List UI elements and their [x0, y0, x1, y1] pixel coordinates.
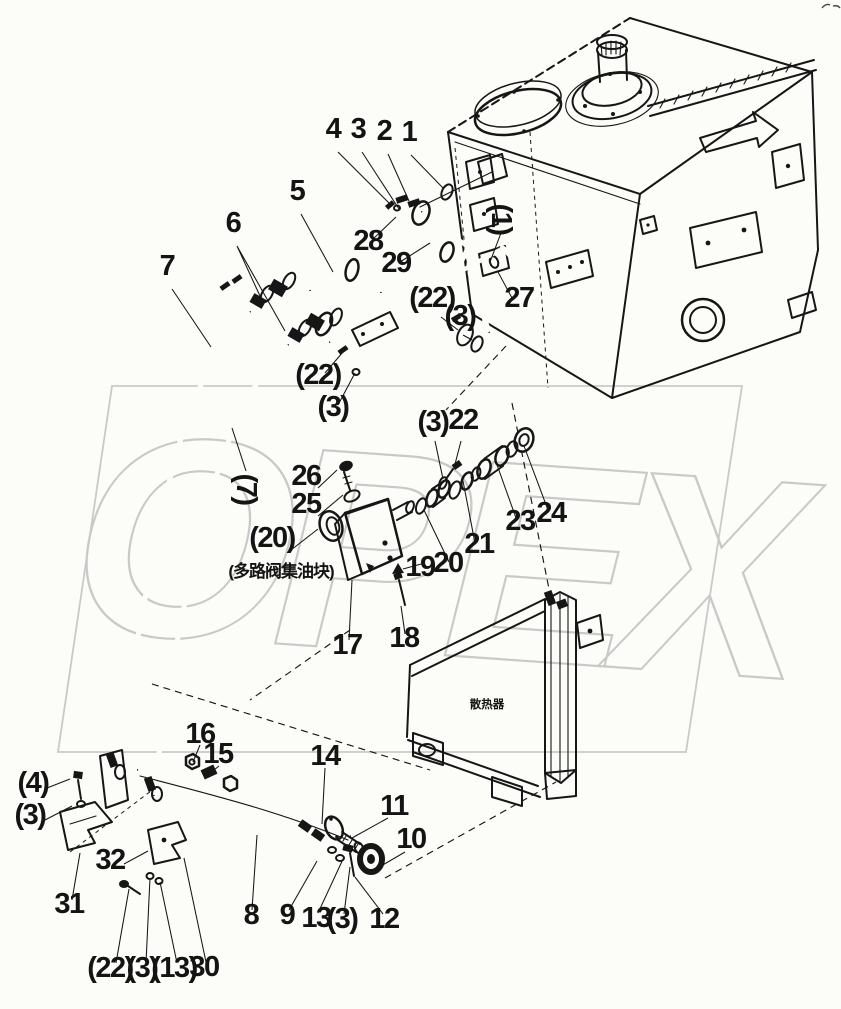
corner-scribble: [822, 4, 840, 8]
callout-27: 27: [504, 282, 534, 314]
callout-22: 22: [448, 404, 478, 436]
callout-20-ref: (20): [249, 522, 295, 554]
valve-block-note: (多路阀集油块): [228, 561, 334, 581]
callout-32: 32: [95, 844, 125, 876]
callout-4-ref: (4): [18, 767, 50, 799]
callout-21: 21: [464, 528, 495, 560]
callout-3-ref-a: (3): [445, 300, 477, 332]
callout-28: 28: [353, 225, 384, 257]
callout-25: 25: [291, 488, 322, 520]
callout-30: 30: [189, 951, 219, 983]
callout-12: 12: [369, 903, 399, 935]
radiator-label: 散热器: [470, 697, 505, 711]
callout-24: 24: [536, 497, 567, 529]
callout-15: 15: [203, 738, 234, 770]
tank-side-port: [682, 299, 724, 341]
callout-14: 14: [310, 740, 341, 772]
callout-5: 5: [290, 175, 306, 207]
callout-17: 17: [332, 629, 362, 661]
callout-6: 6: [226, 207, 242, 239]
callout-7-ref: (7): [230, 474, 262, 506]
o-ring-1: [439, 183, 455, 202]
callout-10: 10: [396, 823, 426, 855]
callout-3-ref-f: (3): [327, 903, 359, 935]
hex-plug-16: [186, 754, 199, 769]
callout-1-ref: (1): [485, 204, 517, 236]
callout-3: 3: [351, 113, 367, 145]
callout-23: 23: [505, 505, 536, 537]
callout-31: 31: [54, 888, 85, 920]
callout-11: 11: [380, 790, 409, 822]
hose-fittings-top: [219, 271, 344, 343]
callout-1: 1: [402, 116, 418, 148]
callout-20: 20: [433, 547, 463, 579]
diagram-page: OPEX: [0, 0, 841, 1009]
callout-2: 2: [377, 115, 392, 147]
callout-4: 4: [326, 113, 342, 145]
callout-3-ref-c: (3): [418, 406, 450, 438]
callout-29: 29: [381, 247, 412, 279]
suction-pipe-assembly: [309, 172, 515, 375]
parts-diagram-canvas: OPEX: [0, 0, 841, 1009]
callout-3-ref-d: (3): [15, 799, 47, 831]
bracket-32: [148, 822, 186, 864]
callout-19: 19: [405, 551, 436, 583]
callout-22-ref-b: (22): [295, 359, 341, 391]
callout-18: 18: [389, 622, 420, 654]
callout-8: 8: [244, 899, 260, 931]
callout-9: 9: [280, 899, 296, 931]
callout-7: 7: [160, 250, 175, 282]
callout-3-ref-b: (3): [318, 391, 350, 423]
arrow-bracket: [700, 112, 778, 152]
